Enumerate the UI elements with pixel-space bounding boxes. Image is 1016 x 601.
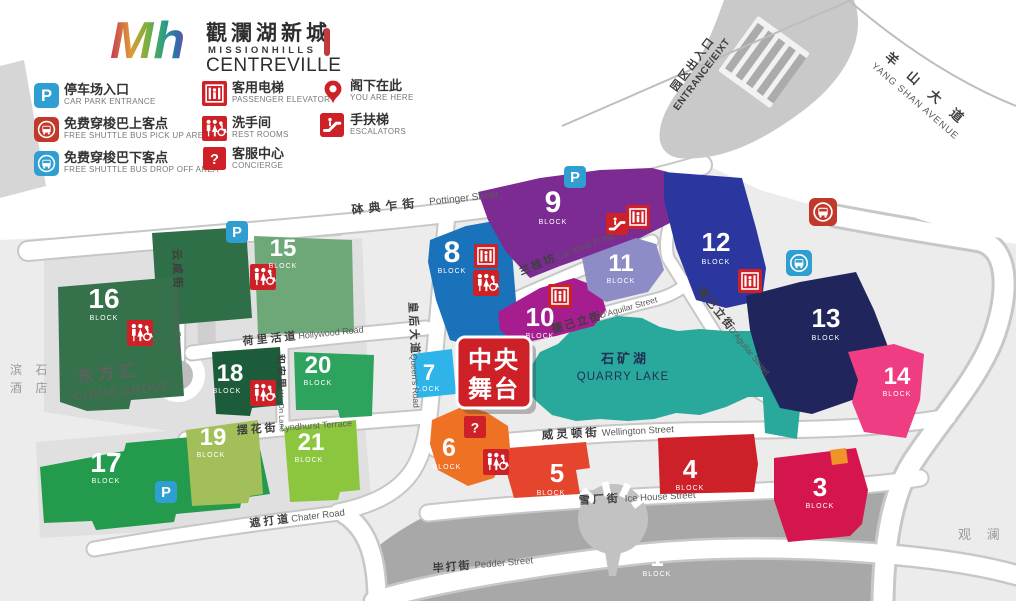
block-18-number: 18: [217, 360, 244, 387]
block-15-word: BLOCK: [269, 263, 298, 270]
legend-elevator-en: PASSENGER ELEVATOR: [232, 95, 330, 104]
block-13-number: 13: [812, 303, 841, 333]
legend-you-are-here-cn: 阁下在此: [350, 78, 402, 93]
restroom-icon: [202, 116, 227, 141]
block-16-number: 16: [88, 283, 119, 314]
block-17-number: 17: [90, 447, 121, 478]
block-9-word: BLOCK: [539, 219, 568, 226]
legend-shuttle-pickup-cn: 免费穿梭巴上客点: [64, 116, 168, 131]
block-19-word: BLOCK: [197, 452, 226, 459]
logo-en-line2: CENTREVILLE: [206, 55, 341, 76]
central-stage-line1: 中央: [468, 347, 520, 374]
block-14-word: BLOCK: [883, 391, 912, 398]
block-3-orange-notch: [830, 448, 848, 465]
legend-elevator-cn: 客用电梯: [232, 80, 284, 95]
legend-concierge-cn: 客服中心: [232, 146, 284, 161]
logo-divider: [324, 28, 330, 56]
hotel-label-line1: 滨 石: [10, 362, 52, 377]
parking-icon: [564, 166, 586, 188]
block-18-word: BLOCK: [213, 388, 242, 395]
block-7-number: 7: [423, 360, 435, 385]
block-8-word: BLOCK: [438, 268, 467, 275]
logo-script: Mh: [110, 12, 185, 70]
block-21-word: BLOCK: [295, 457, 324, 464]
central-stage-callout: 中央 舞台: [457, 337, 536, 414]
restroom-icon: [483, 449, 509, 475]
block-9-number: 9: [545, 186, 562, 219]
elevator-icon: [626, 205, 650, 229]
central-stage-line2: 舞台: [468, 375, 520, 403]
legend-car-park-en: CAR PARK ENTRANCE: [64, 97, 156, 106]
street-wyndham-cn: 云咸街: [170, 249, 185, 291]
block-1-number: 1: [650, 545, 663, 572]
block-12-number: 12: [702, 227, 731, 257]
legend-restrooms-cn: 洗手间: [232, 115, 271, 130]
legend-car-park-cn: 停车场入口: [64, 82, 129, 97]
elevator-icon: [738, 269, 762, 293]
legend-shuttle-dropoff-en: FREE SHUTTLE BUS DROP OFF AREA: [64, 165, 219, 174]
block-8-number: 8: [444, 236, 461, 269]
legend-shuttle-pickup-en: FREE SHUTTLE BUS PICK UP AREA: [64, 131, 209, 140]
escalator-icon: [320, 113, 344, 137]
block-10-word: BLOCK: [526, 333, 555, 340]
shuttle-bus-dropoff-icon: [34, 151, 59, 176]
block-17-word: BLOCK: [92, 478, 121, 485]
block-4-number: 4: [683, 454, 698, 484]
elevator-icon: [202, 81, 227, 106]
block-12-word: BLOCK: [702, 259, 731, 266]
parking-icon: [34, 83, 59, 108]
legend-restrooms-en: REST ROOMS: [232, 130, 289, 139]
legend-shuttle-dropoff-cn: 免费穿梭巴下客点: [64, 150, 168, 165]
block-5-word: BLOCK: [537, 490, 566, 497]
quarry-lake-en: QUARRY LAKE: [577, 371, 669, 383]
block-4-building: [658, 434, 758, 494]
street-wo-on-lane-cn: 和安里: [274, 353, 288, 390]
hotel-label-line2: 酒 店: [10, 381, 52, 395]
parking-icon: [226, 221, 248, 243]
mall-map-svg: P: [0, 0, 1016, 601]
block-14-number: 14: [884, 363, 911, 390]
concierge-icon: [203, 147, 226, 170]
shuttle-bus-pickup-icon: [34, 117, 59, 142]
shuttle-bus-pickup-icon: [809, 198, 837, 226]
block-1-word: BLOCK: [643, 571, 672, 578]
quarry-lake-cn: 石矿湖: [600, 351, 649, 366]
block-20-number: 20: [305, 352, 332, 379]
restroom-icon: [250, 380, 276, 406]
logo-cn: 觀瀾湖新城: [206, 21, 331, 45]
shuttle-bus-dropoff-icon: [786, 250, 812, 276]
right-edge-label: 观 澜 湖: [958, 527, 1016, 542]
legend-escalators-cn: 手扶梯: [350, 112, 389, 127]
block-10-number: 10: [526, 302, 555, 332]
block-3-number: 3: [813, 472, 827, 502]
block-6-number: 6: [442, 434, 456, 462]
elevator-icon: [474, 244, 498, 268]
restroom-icon: [127, 320, 153, 346]
legend-you-are-here-en: YOU ARE HERE: [350, 93, 414, 102]
restroom-icon: [473, 270, 499, 296]
block-19-number: 19: [200, 424, 227, 451]
block-15-number: 15: [270, 235, 297, 262]
parking-icon: [155, 481, 177, 503]
block-20-word: BLOCK: [304, 380, 333, 387]
concierge-icon: [464, 416, 486, 438]
block-11-word: BLOCK: [607, 278, 636, 285]
logo: Mh 觀瀾湖新城 MISSIONHILLS CENTREVILLE: [110, 12, 341, 76]
block-5-number: 5: [550, 458, 564, 488]
block-13-word: BLOCK: [812, 335, 841, 342]
legend-concierge-en: CONCIERGE: [232, 161, 283, 170]
block-3-word: BLOCK: [806, 503, 835, 510]
map-canvas: P: [0, 0, 1016, 601]
legend-escalators-en: ESCALATORS: [350, 127, 406, 136]
block-21-number: 21: [298, 429, 325, 456]
block-11-number: 11: [608, 250, 633, 277]
block-16-word: BLOCK: [90, 315, 119, 322]
block-6-word: BLOCK: [433, 464, 462, 471]
